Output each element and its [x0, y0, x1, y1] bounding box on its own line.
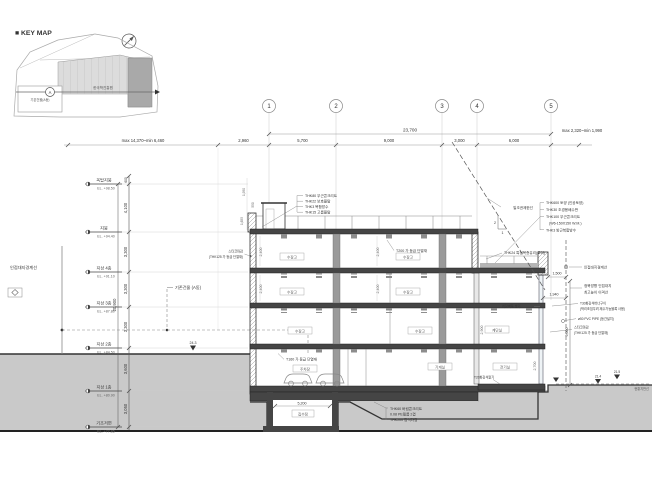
level-el: EL. +77.85	[97, 430, 115, 434]
vdim-4: 3,300	[123, 321, 128, 332]
note: THK15 고름몰탈	[305, 210, 331, 215]
dim-seg-3: 9,000	[384, 138, 395, 143]
left-wall-note: 스타코마감 (THK125 가 등급 단열재)	[209, 249, 252, 260]
setback-note-1: 정북방향 인접대지	[584, 283, 611, 288]
room-tag: 전기실	[500, 365, 510, 370]
vdim-total: 20,900	[112, 298, 117, 311]
pipe-note: ø50 PVC PIPE (등간설치)	[578, 316, 614, 321]
stone-note-2: (박리조짐우려 제수가능블록 사용)	[580, 306, 625, 311]
room-dim: 2,400	[376, 285, 380, 294]
parking-insulation-note: T160 가 등급 단열재	[286, 357, 317, 362]
spot-level-right-b: 21.5	[614, 370, 620, 374]
paving-note: T20화강석깔기	[474, 375, 494, 380]
room-dim: 2,700	[533, 362, 537, 371]
pit-dim: 5,200	[298, 402, 307, 406]
stucco-note-l1: 스타코마감	[228, 249, 243, 254]
dim-seg-1: 2,960	[238, 138, 249, 143]
note: THK80 무근콘크리트	[305, 193, 338, 198]
room-dim: 2,400	[259, 248, 263, 257]
level-marker: 옥탑지붕 EL. +98.50	[85, 177, 122, 191]
note: THK200 잡석다짐	[390, 417, 417, 422]
dim-right-range: max 2,320~min 1,990	[562, 128, 603, 133]
spot-level-right-a: 21.4	[595, 375, 601, 379]
sun-line-label: 일조권제한선	[513, 205, 533, 210]
note: THK3 방근복합방수	[546, 228, 577, 233]
dim-left-range: max 14,370~min 6,460	[122, 138, 165, 143]
vdim-5: 3,600	[123, 363, 128, 374]
room-tag: 수장고	[295, 329, 306, 334]
level-el: EL. +91.10	[97, 275, 115, 279]
level-name: 지상 1층	[96, 384, 111, 391]
level-name: 지붕	[100, 225, 108, 232]
partitions	[348, 273, 390, 386]
brick-note: 치장벽돌 쌓기	[502, 304, 521, 309]
note: THK22 보호몰탈	[305, 199, 331, 204]
curtain-wall-glass	[539, 275, 543, 384]
room-tag-parking: 주차장	[300, 367, 311, 372]
note: THK60 버림콘크리트	[390, 406, 423, 411]
interior-wall-grid4	[474, 273, 479, 384]
key-map-title: ■ KEY MAP	[15, 30, 52, 37]
penthouse-dim: 1,655	[240, 217, 244, 225]
level-marker: 지상 4층 EL. +91.10	[85, 265, 122, 279]
room-dim: 2,900	[480, 326, 484, 335]
penthouse-dim: 1,950	[242, 188, 246, 196]
grid-bubbles: 1 2 3 4 5	[263, 100, 558, 113]
vdim-top: 600	[124, 177, 128, 183]
level-name: 지상 3층	[96, 300, 111, 307]
left-boundary-label: 인접대지경계선	[10, 264, 37, 271]
note: THK600 토양 (인공토양)	[546, 200, 583, 205]
stucco-note-l2: (THK125 가 등급 단열재)	[209, 254, 243, 259]
slope-ratio-v: 2	[494, 221, 496, 225]
setback-note-2: 최고높이 이격선	[584, 290, 608, 295]
level-name: 지상 4층	[96, 265, 111, 272]
spot-level-left: 24.3	[190, 341, 197, 345]
dim-1500: 1,500	[553, 272, 562, 276]
left-boundary-line: 인접대지경계선	[8, 246, 63, 354]
stone-note-1: T30화강석버너구이	[580, 301, 606, 306]
glass-note: THK24 특청복층유리(로이)	[504, 250, 545, 255]
vdim-3: 3,300	[123, 283, 128, 294]
level-el: EL. +80.90	[97, 394, 115, 398]
room-tag: 수장고	[403, 290, 414, 295]
dim-seg-5: 6,000	[509, 138, 520, 143]
level-name: 옥탑지붕	[96, 177, 112, 184]
boundary-note: 인접대지경계선	[584, 265, 607, 270]
slope-ratio-h: 1	[502, 231, 504, 235]
level-el: EL. +94.40	[97, 235, 115, 239]
roof-insulation-note: T200 가 등급 단열재	[396, 248, 427, 253]
room-dim: 2,400	[376, 248, 380, 257]
room-tag: 수장고	[287, 255, 298, 260]
level-el: EL. +84.50	[97, 351, 115, 355]
key-map: ■ KEY MAP A 한국학진흥원 기존건물(A동)	[14, 30, 160, 117]
note: THK100 무근콘크리트	[546, 214, 581, 219]
room-tag: 수장고	[403, 255, 414, 260]
annex-railing	[480, 256, 538, 264]
pit-label: 집수정	[298, 412, 308, 417]
note: (W6-150X150 W.M.)	[549, 222, 582, 226]
dim-total: 23,700	[403, 128, 417, 133]
room-dim: 2,400	[259, 285, 263, 294]
room-tag: 기계실	[435, 365, 445, 370]
level-marker: 지상 2층 EL. +84.50	[85, 341, 122, 355]
level-name: 기초저면	[96, 420, 112, 427]
key-map-site-label: 한국학진흥원	[93, 85, 113, 90]
section-drawing: ■ KEY MAP A 한국학진흥원 기존건물(A동)	[0, 0, 652, 488]
key-map-existing-label: 기존건물(A동)	[31, 97, 50, 102]
room-tag: 수장고	[287, 290, 298, 295]
dim-9000: 9,000	[565, 328, 569, 337]
dim-seg-2: 5,700	[297, 138, 308, 143]
dim-1940: 1,940	[550, 293, 559, 297]
penthouse-dim: 550	[251, 202, 255, 208]
vdim-2: 3,300	[123, 246, 128, 257]
vdim-6: 3,050	[123, 403, 128, 414]
note: THK3 복합방수	[305, 204, 329, 209]
roof-railing	[256, 216, 472, 229]
pvc-pipe-icon	[562, 320, 565, 323]
existing-building-label: 기존건물 (A동)	[175, 284, 202, 291]
note: 0.08 PE필름 2겹	[390, 412, 416, 417]
level-marker: 지붕 EL. +94.40	[85, 225, 122, 239]
spot-level-icon	[553, 378, 559, 383]
grade-line-label: 현황지반선	[634, 386, 649, 391]
level-name: 지상 2층	[96, 341, 111, 348]
level-el: EL. +98.50	[97, 187, 115, 191]
spot-level-icon	[614, 375, 620, 380]
room-tag: 수장고	[415, 329, 426, 334]
room-tag: 계단실	[492, 328, 502, 333]
note: THK30 조경용배수판	[546, 207, 579, 212]
vdim-1: 4,100	[123, 202, 128, 213]
section-mark: A	[49, 90, 52, 95]
architectural-section-sheet: ■ KEY MAP A 한국학진흥원 기존건물(A동)	[0, 0, 652, 488]
top-dimensions: 23,700 max 14,370~min 6,460 2,960 5,700 …	[64, 128, 603, 148]
dim-seg-4: 3,000	[454, 138, 465, 143]
spot-level-icon	[595, 379, 601, 384]
stucco-note-2: (THK125 가 등급 단열재)	[574, 330, 608, 335]
stucco-note-1: 스타코마감	[574, 325, 589, 330]
key-map-main-building	[58, 55, 152, 107]
